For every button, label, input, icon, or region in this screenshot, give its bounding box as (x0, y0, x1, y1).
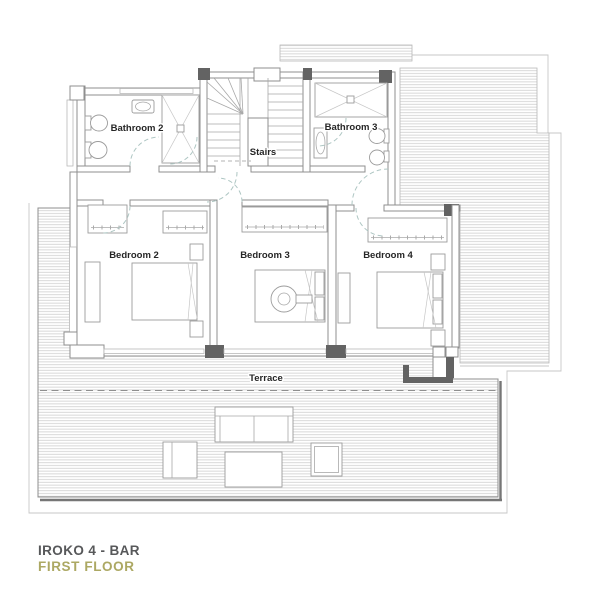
bathroom3-door-swing (352, 169, 388, 205)
stair-parapet (254, 68, 280, 81)
corner-pillar (70, 86, 84, 100)
coffee-table-icon (225, 452, 282, 487)
label-stairs: Stairs (250, 147, 276, 158)
dresser-icon (85, 262, 100, 322)
bed-icon (132, 263, 197, 320)
plan-title: IROKO 4 - BAR (38, 543, 140, 558)
wall-bedroom3-4 (328, 205, 336, 356)
bedroom3-slider (224, 349, 326, 354)
nightstand-icon (190, 321, 203, 337)
label-terrace: Terrace (249, 373, 283, 384)
bedroom4-furniture (338, 218, 447, 346)
dresser-icon (338, 273, 350, 323)
side-table-icon (311, 443, 342, 476)
round-rug-icon (271, 286, 297, 312)
hall-door-swing (207, 172, 237, 202)
wardrobe-icon (163, 211, 207, 233)
nightstand-icon (431, 254, 445, 270)
label-bedroom4: Bedroom 4 (363, 250, 413, 261)
label-bedroom3: Bedroom 3 (240, 250, 290, 261)
nightstand-icon (190, 244, 203, 260)
bedroom2-slider (104, 349, 204, 354)
label-bathroom3: Bathroom 3 (325, 122, 378, 133)
bedroom2-window (70, 247, 77, 332)
floor-plan-page: Bathroom 2 Bathroom 3 Stairs Bedroom 2 B… (0, 0, 600, 600)
wardrobe-icon (242, 207, 327, 232)
title-block: IROKO 4 - BAR FIRST FLOOR (38, 543, 140, 574)
lounge-chair-icon (163, 442, 197, 478)
roof-strip-hatch (280, 45, 412, 61)
floor-plan-canvas: Bathroom 2 Bathroom 3 Stairs Bedroom 2 B… (0, 0, 600, 600)
nightstand-icon (431, 330, 445, 346)
bedroom4-right-wall (452, 205, 459, 348)
label-bathroom2: Bathroom 2 (111, 123, 164, 134)
wall-bedroom2-3 (210, 200, 217, 356)
plan-subtitle: FIRST FLOOR (38, 559, 135, 574)
bedroom3-furniture (242, 207, 327, 322)
stair-core (248, 118, 268, 166)
bedroom4-slider (346, 349, 433, 354)
label-bedroom2: Bedroom 2 (109, 250, 159, 261)
bathroom2-window (120, 89, 193, 94)
bathroom2-door-swing (130, 137, 159, 166)
bedroom2-furniture (85, 205, 207, 337)
